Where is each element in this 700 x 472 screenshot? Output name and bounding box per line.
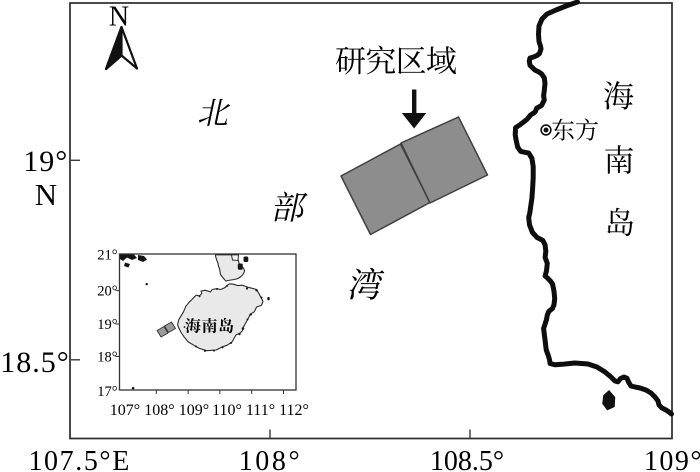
svg-text:21°: 21° [97, 247, 118, 263]
svg-text:N: N [35, 177, 57, 212]
svg-text:108°: 108° [239, 446, 303, 472]
svg-text:109°: 109° [179, 402, 209, 419]
svg-text:19°: 19° [23, 145, 68, 178]
svg-text:108°: 108° [144, 402, 174, 419]
svg-text:18°: 18° [97, 350, 118, 366]
svg-text:109°: 109° [644, 446, 700, 472]
svg-text:111°: 111° [246, 402, 275, 419]
svg-text:108.5°: 108.5° [430, 446, 504, 472]
svg-text:107.5°E: 107.5°E [28, 446, 131, 472]
svg-text:19°: 19° [97, 317, 118, 333]
svg-text:18.5°: 18.5° [0, 346, 70, 379]
svg-text:110°: 110° [212, 402, 242, 419]
svg-text:112°: 112° [279, 402, 309, 419]
svg-text:107°: 107° [110, 402, 140, 419]
svg-text:N: N [109, 2, 129, 33]
svg-text:17°: 17° [97, 384, 118, 400]
svg-text:20°: 20° [97, 284, 118, 300]
